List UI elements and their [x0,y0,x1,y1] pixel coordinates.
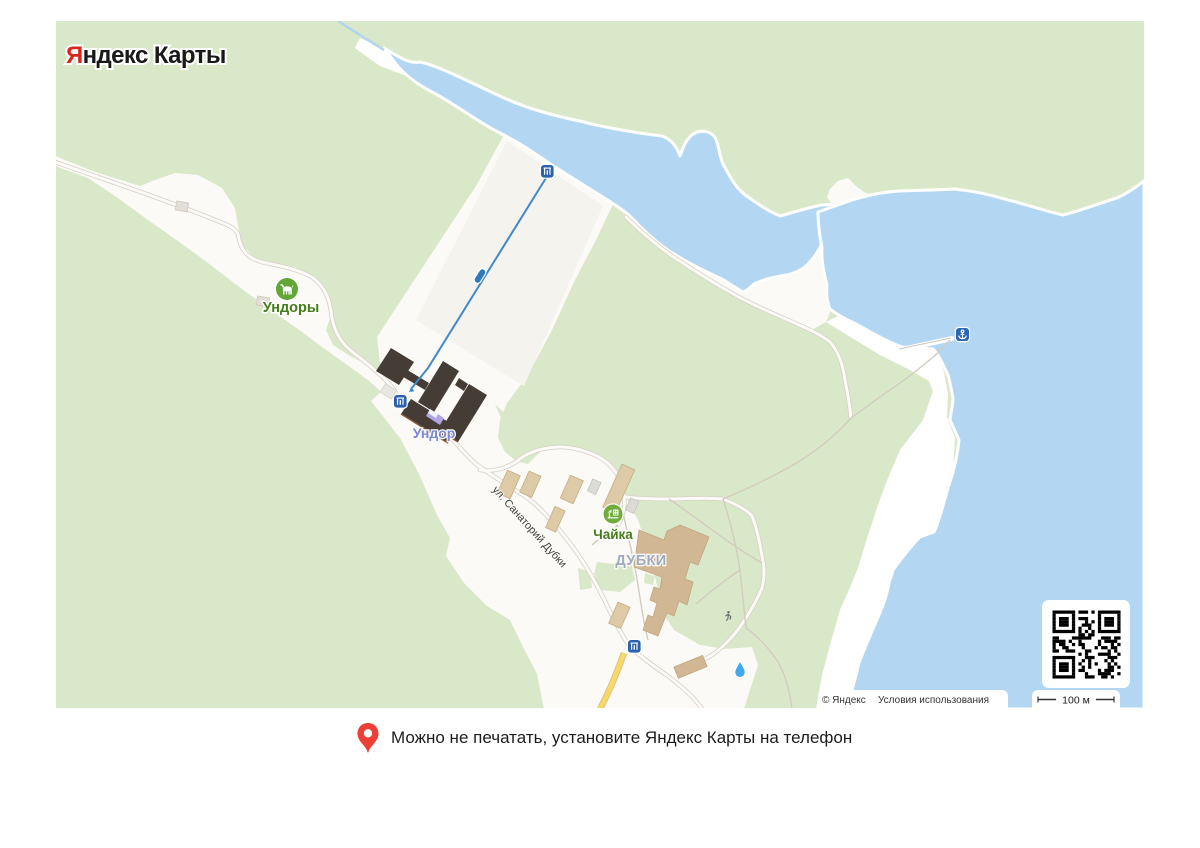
svg-text:Чайка: Чайка [593,527,633,542]
svg-text:Яндекс Карты: Яндекс Карты [66,42,226,69]
svg-text:100 м: 100 м [1062,695,1090,707]
svg-text:ДУБКИ: ДУБКИ [615,553,666,569]
svg-text:© Яндекс: © Яндекс [822,695,866,706]
svg-text:Ундор: Ундор [413,425,456,441]
svg-text:Ундоры: Ундоры [263,300,320,316]
svg-text:Условия использования: Условия использования [878,695,989,706]
